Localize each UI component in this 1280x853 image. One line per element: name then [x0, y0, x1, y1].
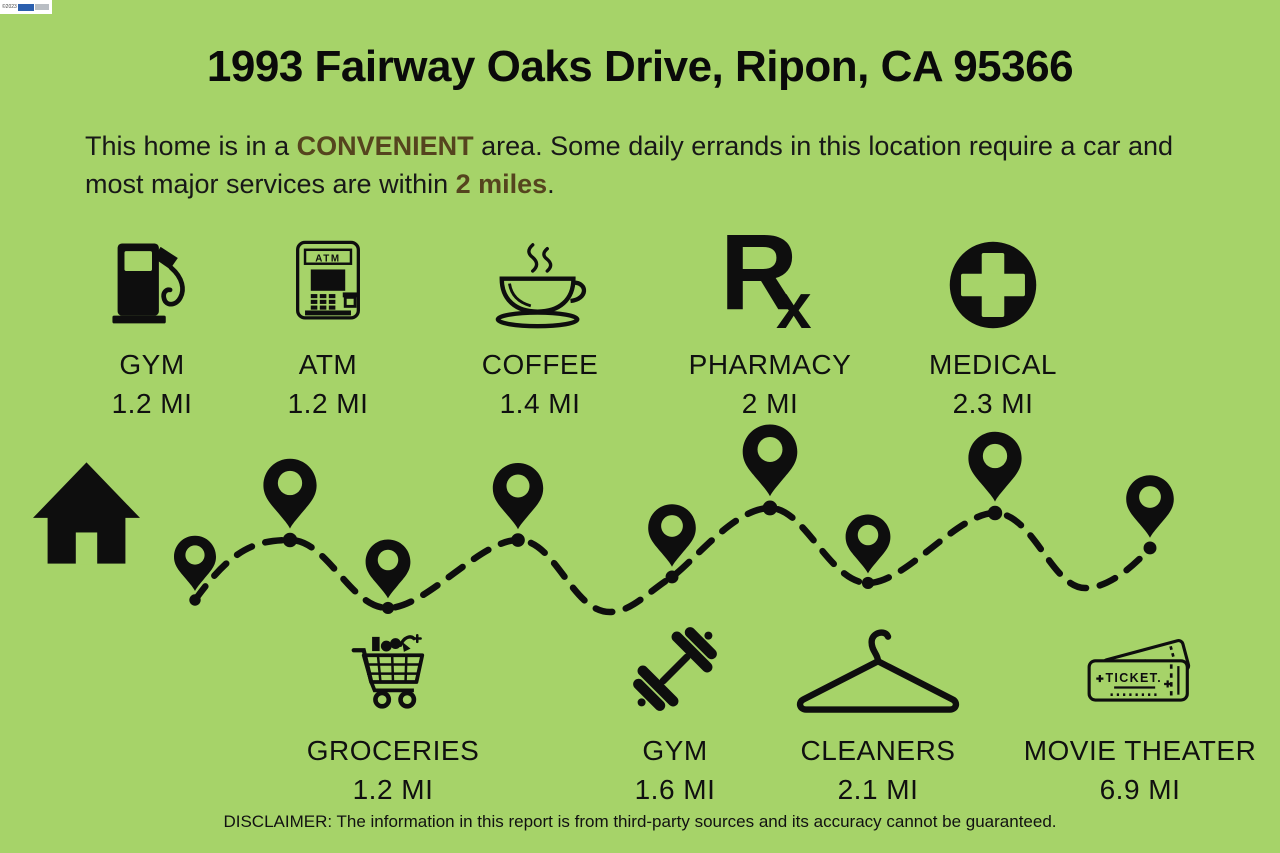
amenity-atm: ATM ATM 1.2 MI	[208, 230, 448, 420]
infographic-canvas: ©2023 1993 Fairway Oaks Drive, Ripon, CA…	[0, 0, 1280, 853]
map-pin-icon	[493, 463, 543, 547]
watermark-brand-mark-2	[35, 4, 49, 10]
map-pin-icon	[263, 459, 316, 548]
route-map	[0, 420, 1280, 640]
ticket-icon-label: TICKET.	[1105, 671, 1162, 685]
rx-letter-x: x	[776, 274, 812, 338]
atm-icon: ATM	[208, 230, 448, 332]
rx-icon: R x	[650, 230, 890, 332]
amenity-name: PHARMACY	[650, 349, 890, 381]
amenity-name: GROCERIES	[273, 735, 513, 767]
amenity-name: ATM	[208, 349, 448, 381]
amenity-name: CLEANERS	[758, 735, 998, 767]
map-pin-icon	[968, 432, 1021, 521]
page-title: 1993 Fairway Oaks Drive, Ripon, CA 95366	[0, 42, 1280, 92]
hanger-icon	[758, 616, 998, 718]
amenity-distance: 2 MI	[650, 388, 890, 420]
disclaimer-text: DISCLAIMER: The information in this repo…	[0, 812, 1280, 832]
amenity-groceries: GROCERIES 1.2 MI	[273, 616, 513, 806]
amenity-medical: MEDICAL 2.3 MI	[873, 230, 1113, 420]
grocery-cart-icon	[273, 616, 513, 718]
summary-paragraph: This home is in a CONVENIENT area. Some …	[85, 127, 1205, 204]
map-pin-icon	[1126, 475, 1174, 554]
atm-icon-label: ATM	[315, 253, 340, 264]
amenity-distance: 2.3 MI	[873, 388, 1113, 420]
map-pin-icon	[174, 536, 216, 606]
map-pin-icon	[648, 504, 696, 583]
medical-cross-icon	[873, 230, 1113, 332]
amenity-movie-theater: TICKET. MOVIE THEATER 6.9 MI	[1020, 616, 1260, 806]
amenity-coffee: COFFEE 1.4 MI	[420, 230, 660, 420]
watermark-brand-mark	[18, 4, 34, 11]
amenity-pharmacy: R x PHARMACY 2 MI	[650, 230, 890, 420]
map-pin-icon	[743, 425, 798, 516]
amenity-cleaners: CLEANERS 2.1 MI	[758, 616, 998, 806]
watermark-copyright: ©2023	[2, 5, 17, 10]
summary-text-1: This home is in a	[85, 131, 297, 161]
amenity-name: COFFEE	[420, 349, 660, 381]
amenity-distance: 2.1 MI	[758, 774, 998, 806]
amenity-distance: 1.2 MI	[273, 774, 513, 806]
amenity-name: MOVIE THEATER	[1020, 735, 1260, 767]
amenity-distance: 1.4 MI	[420, 388, 660, 420]
summary-text-3: .	[547, 169, 555, 199]
movie-tickets-icon: TICKET.	[1020, 616, 1260, 718]
amenity-name: MEDICAL	[873, 349, 1113, 381]
summary-highlight-miles: 2 miles	[456, 169, 548, 199]
watermark-logo: ©2023	[0, 0, 52, 14]
amenity-distance: 6.9 MI	[1020, 774, 1260, 806]
coffee-cup-icon	[420, 230, 660, 332]
amenity-distance: 1.2 MI	[208, 388, 448, 420]
summary-highlight-convenient: CONVENIENT	[297, 131, 474, 161]
